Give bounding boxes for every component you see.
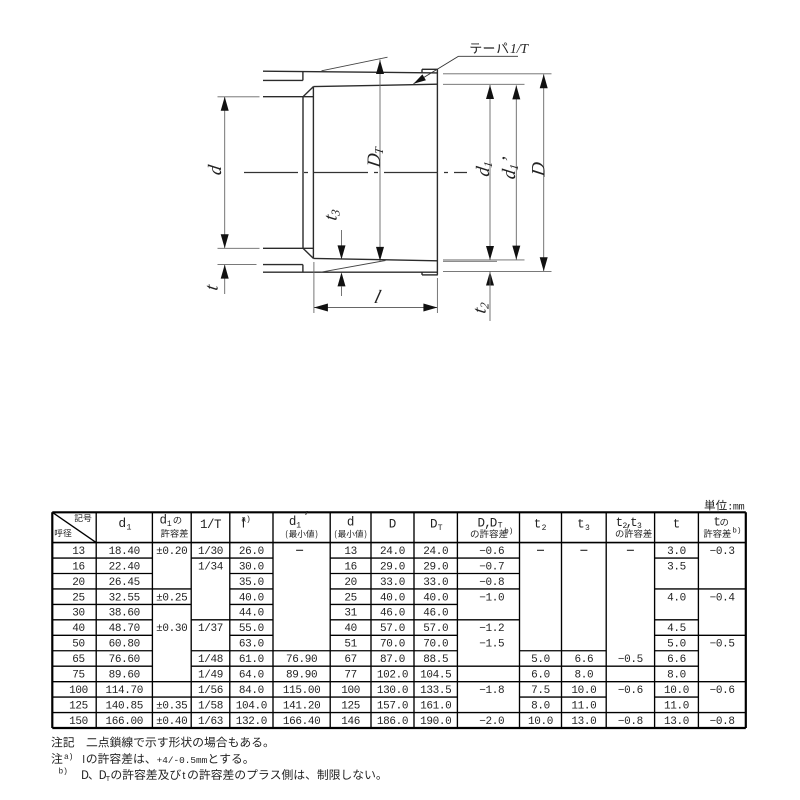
svg-text:100: 100: [341, 685, 360, 697]
svg-text:161.0: 161.0: [420, 700, 451, 712]
svg-text:−1.8: −1.8: [479, 685, 504, 697]
svg-text:125: 125: [69, 700, 88, 712]
svg-text:1/30: 1/30: [198, 546, 223, 558]
svg-text:6.6: 6.6: [667, 654, 686, 666]
svg-text:−1.2: −1.2: [479, 623, 504, 635]
svg-text:10.0: 10.0: [664, 685, 689, 697]
svg-text:a): a): [64, 754, 73, 762]
svg-text:−0.7: −0.7: [479, 561, 504, 573]
svg-text:−1.0: −1.0: [479, 592, 504, 604]
svg-text:57.0: 57.0: [423, 623, 448, 635]
svg-text:24.0: 24.0: [380, 546, 405, 558]
svg-text:50: 50: [72, 639, 85, 651]
svg-text:T: T: [106, 776, 110, 784]
svg-text:3.0: 3.0: [667, 546, 686, 558]
svg-text:35.0: 35.0: [239, 577, 264, 589]
svg-text:6.0: 6.0: [531, 670, 550, 682]
svg-text:1/58: 1/58: [198, 700, 223, 712]
svg-text:40.0: 40.0: [423, 592, 448, 604]
svg-text:88.5: 88.5: [423, 654, 448, 666]
svg-text:10.0: 10.0: [528, 716, 553, 728]
svg-text:16: 16: [344, 561, 357, 573]
svg-text:+4/-0.5mm: +4/-0.5mm: [157, 755, 208, 766]
svg-text:186.0: 186.0: [377, 716, 408, 728]
svg-text:−2.0: −2.0: [479, 716, 504, 728]
svg-text:141.20: 141.20: [283, 700, 321, 712]
svg-text:76.60: 76.60: [109, 654, 140, 666]
svg-text:1/63: 1/63: [198, 716, 223, 728]
svg-text:1/T: 1/T: [510, 41, 530, 56]
svg-text:1: 1: [167, 520, 172, 529]
svg-text:157.0: 157.0: [377, 700, 408, 712]
svg-text:25: 25: [72, 592, 85, 604]
svg-text:190.0: 190.0: [420, 716, 451, 728]
svg-text:13.0: 13.0: [664, 716, 689, 728]
svg-text:26.0: 26.0: [239, 546, 264, 558]
svg-text:24.0: 24.0: [423, 546, 448, 558]
svg-text:100: 100: [69, 685, 88, 697]
svg-text:29.0: 29.0: [380, 561, 405, 573]
svg-text:146: 146: [341, 716, 360, 728]
svg-text:77: 77: [344, 670, 357, 682]
svg-text:8.0: 8.0: [667, 670, 686, 682]
svg-text:−1.5: −1.5: [479, 639, 504, 651]
svg-text:65: 65: [72, 654, 85, 666]
svg-text:104.0: 104.0: [236, 700, 267, 712]
svg-text:’: ’: [303, 511, 311, 525]
svg-text:D: D: [490, 516, 498, 530]
svg-text:13: 13: [72, 546, 85, 558]
svg-text:5.0: 5.0: [531, 654, 550, 666]
svg-text:55.0: 55.0: [239, 623, 264, 635]
svg-text:125: 125: [341, 700, 360, 712]
svg-text:±0.40: ±0.40: [156, 716, 187, 728]
svg-text:76.90: 76.90: [286, 654, 317, 666]
svg-text:−0.6: −0.6: [618, 685, 643, 697]
svg-text:a): a): [241, 516, 251, 525]
svg-text:D: D: [430, 518, 438, 532]
svg-text:75: 75: [72, 670, 85, 682]
svg-text:33.0: 33.0: [423, 577, 448, 589]
svg-text:51: 51: [344, 639, 357, 651]
svg-text:16: 16: [72, 561, 85, 573]
svg-text:115.00: 115.00: [283, 685, 321, 697]
svg-text:−0.6: −0.6: [710, 685, 735, 697]
svg-text:102.0: 102.0: [377, 670, 408, 682]
svg-text:26.45: 26.45: [109, 577, 140, 589]
svg-text:13: 13: [344, 546, 357, 558]
svg-text:−0.5: −0.5: [710, 639, 735, 651]
svg-text:61.0: 61.0: [239, 654, 264, 666]
svg-text:32.55: 32.55: [109, 592, 140, 604]
svg-text:3.5: 3.5: [667, 561, 686, 573]
svg-text:D: D: [389, 518, 397, 532]
svg-text:70.0: 70.0: [380, 639, 405, 651]
svg-text:46.0: 46.0: [423, 608, 448, 620]
svg-text:38.60: 38.60: [109, 608, 140, 620]
svg-text:−0.6: −0.6: [479, 546, 504, 558]
svg-text:30: 30: [72, 608, 85, 620]
svg-text:±0.30: ±0.30: [156, 623, 187, 635]
svg-text:63.0: 63.0: [239, 639, 264, 651]
svg-text:64.0: 64.0: [239, 670, 264, 682]
svg-text:2: 2: [542, 524, 547, 533]
svg-text:11.0: 11.0: [571, 700, 596, 712]
svg-text:114.70: 114.70: [106, 685, 144, 697]
svg-text:8.0: 8.0: [575, 670, 594, 682]
svg-text:20: 20: [344, 577, 357, 589]
svg-text:3: 3: [637, 522, 642, 531]
svg-text:130.0: 130.0: [377, 685, 408, 697]
svg-text:33.0: 33.0: [380, 577, 405, 589]
svg-text:150: 150: [69, 716, 88, 728]
svg-text:−0.4: −0.4: [710, 592, 736, 604]
svg-text:4.0: 4.0: [667, 592, 686, 604]
svg-text:8.0: 8.0: [531, 700, 550, 712]
svg-text:140.85: 140.85: [106, 700, 144, 712]
svg-text:1/48: 1/48: [198, 654, 223, 666]
svg-text:±0.25: ±0.25: [156, 592, 187, 604]
svg-text:b): b): [59, 769, 68, 777]
svg-text:t: t: [673, 518, 681, 532]
svg-text:22.40: 22.40: [109, 561, 140, 573]
svg-text:−0.8: −0.8: [479, 577, 504, 589]
svg-text:18.40: 18.40: [109, 546, 140, 558]
svg-text:40.0: 40.0: [380, 592, 405, 604]
svg-text:10.0: 10.0: [571, 685, 596, 697]
svg-text:84.0: 84.0: [239, 685, 264, 697]
svg-text:1/56: 1/56: [198, 685, 223, 697]
svg-text:11.0: 11.0: [664, 700, 689, 712]
svg-text:b): b): [504, 528, 513, 536]
svg-text:166.00: 166.00: [106, 716, 144, 728]
svg-text:166.40: 166.40: [283, 716, 321, 728]
svg-text:40.0: 40.0: [239, 592, 264, 604]
svg-text:−0.3: −0.3: [710, 546, 735, 558]
svg-text:7.5: 7.5: [531, 685, 550, 697]
svg-text:t: t: [182, 770, 185, 782]
svg-text:25: 25: [344, 592, 357, 604]
svg-text:87.0: 87.0: [380, 654, 405, 666]
svg-text:29.0: 29.0: [423, 561, 448, 573]
svg-text:30.0: 30.0: [239, 561, 264, 573]
svg-text:57.0: 57.0: [380, 623, 405, 635]
svg-text:T: T: [438, 524, 443, 533]
svg-text:70.0: 70.0: [423, 639, 448, 651]
svg-text:48.70: 48.70: [109, 623, 140, 635]
svg-text:−0.5: −0.5: [618, 654, 643, 666]
svg-text:13.0: 13.0: [571, 716, 596, 728]
svg-text:89.90: 89.90: [286, 670, 317, 682]
svg-text:46.0: 46.0: [380, 608, 405, 620]
svg-text:40: 40: [344, 623, 357, 635]
svg-text:−0.8: −0.8: [618, 716, 643, 728]
svg-text:d: d: [118, 516, 126, 531]
svg-text:t: t: [713, 516, 721, 530]
svg-text:67: 67: [344, 654, 357, 666]
svg-text:b): b): [732, 528, 741, 536]
svg-text:1: 1: [126, 523, 131, 533]
svg-text:5.0: 5.0: [667, 639, 686, 651]
svg-text:1/34: 1/34: [198, 561, 224, 573]
svg-text:−0.8: −0.8: [710, 716, 735, 728]
svg-text:1/49: 1/49: [198, 670, 223, 682]
svg-text:1/37: 1/37: [198, 623, 223, 635]
svg-text:20: 20: [72, 577, 85, 589]
svg-text:40: 40: [72, 623, 85, 635]
svg-text:t: t: [534, 518, 542, 532]
svg-text:132.0: 132.0: [236, 716, 267, 728]
svg-text:t: t: [577, 518, 585, 532]
svg-text:1: 1: [296, 522, 301, 531]
svg-text:d: d: [347, 516, 355, 530]
svg-text:6.6: 6.6: [575, 654, 594, 666]
svg-text:60.80: 60.80: [109, 639, 140, 651]
svg-text:31: 31: [344, 608, 357, 620]
svg-text:3: 3: [585, 524, 590, 533]
svg-text:4.5: 4.5: [667, 623, 686, 635]
svg-text:T: T: [498, 521, 503, 530]
svg-text:44.0: 44.0: [239, 608, 264, 620]
svg-text:±0.35: ±0.35: [156, 700, 187, 712]
svg-text:133.5: 133.5: [420, 685, 451, 697]
svg-text:89.60: 89.60: [109, 670, 140, 682]
svg-text:l: l: [83, 754, 85, 766]
svg-text:1/T: 1/T: [200, 518, 222, 532]
svg-text:±0.20: ±0.20: [156, 546, 187, 558]
svg-text:104.5: 104.5: [420, 670, 451, 682]
